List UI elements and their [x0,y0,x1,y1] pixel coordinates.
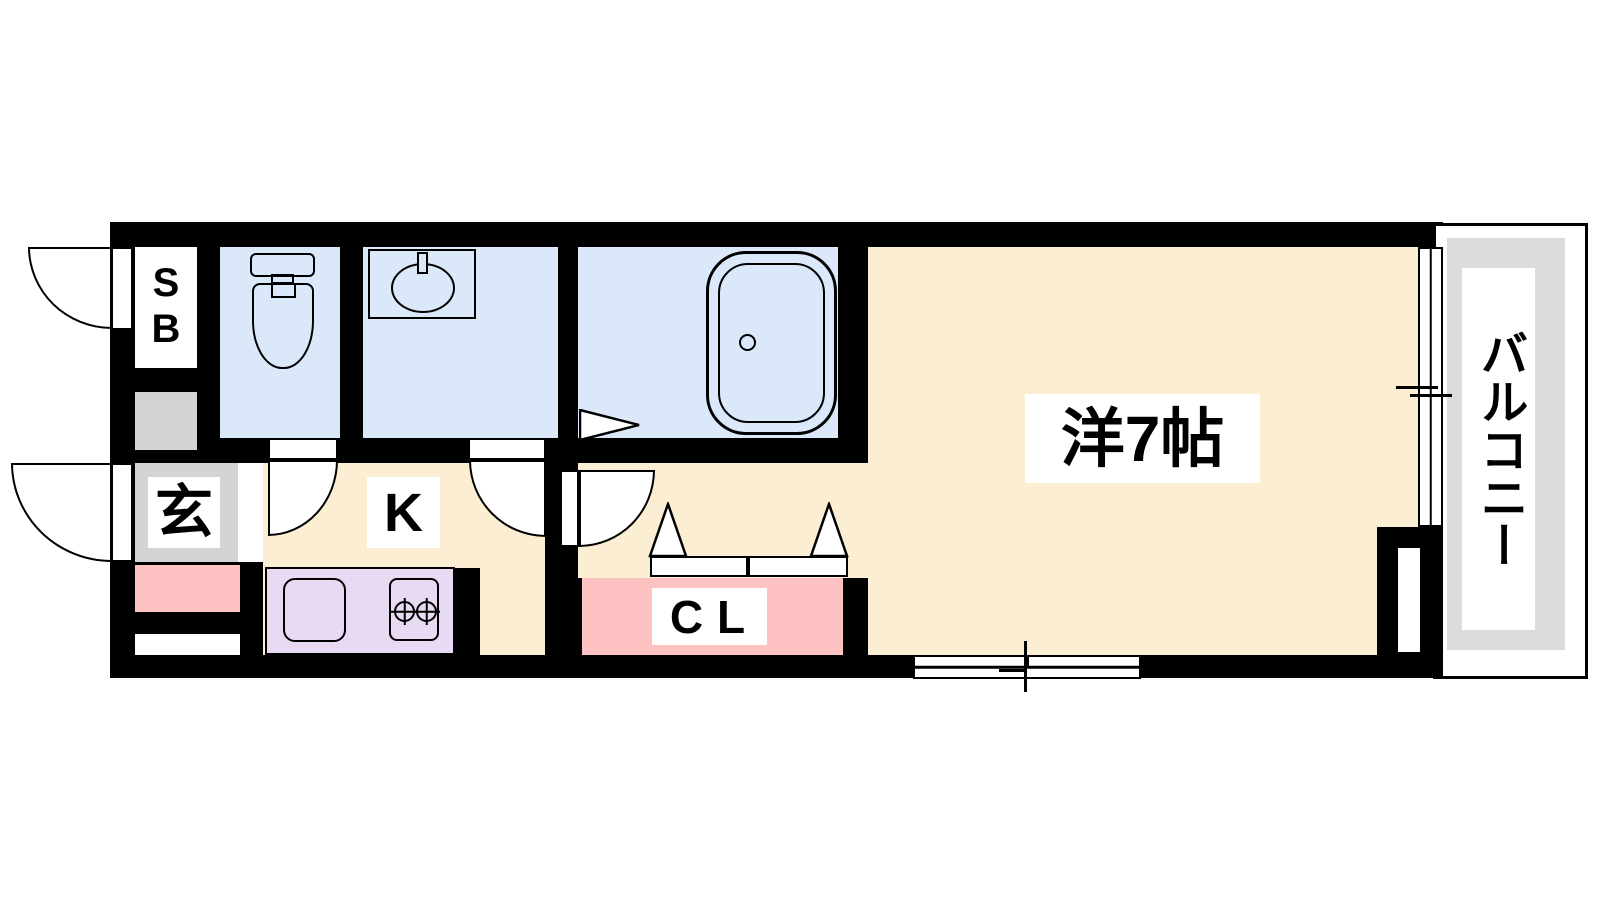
stove-burner-left [394,601,415,622]
south-window-tick [1024,641,1027,692]
closet-fold-icon-left [648,502,688,558]
toilet-seat-notch [271,285,296,298]
stove-burner-right [416,601,437,622]
balcony-door-tick-2 [1410,394,1452,397]
floor-plan: バルコニー [0,0,1600,900]
meter-box-opening [135,634,240,655]
shoe-box-label: SB [139,252,193,362]
south-sliding-window [913,655,1141,679]
washbasin-tap [417,252,428,274]
south-window-dash [999,669,1026,672]
entry-door-swing-bottom [11,463,112,562]
washroom-door-leaf [468,438,546,460]
entrance-corridor [135,392,197,450]
closet-door-panel-right [748,556,848,577]
closet-fold-icon-right [809,502,849,558]
kitchen-label: K [367,477,440,548]
entry-door-leaf-top [111,247,133,330]
balcony-door-tick-1 [1396,386,1438,389]
kitchen-wall-stub [455,568,480,655]
main-room-door-leaf [560,470,579,547]
bath-folding-door-icon [579,409,641,441]
entrance-step [238,463,263,562]
toilet-door-leaf [268,438,338,460]
kitchen-sink [283,578,346,642]
entry-door-swing-top [28,247,112,329]
closet-label: CL [652,588,767,645]
entry-door-leaf-bottom [111,463,133,562]
bathtub-inner [718,263,825,423]
balcony-label: バルコニー [1462,268,1535,630]
pipe-space-shaft [1398,548,1420,652]
closet-door-panel-left [650,556,748,577]
entrance-label: 玄 [148,477,220,548]
bathtub-drain [739,334,756,351]
entrance-storage [135,565,240,612]
main-room-label: 洋7帖 [1025,394,1260,483]
